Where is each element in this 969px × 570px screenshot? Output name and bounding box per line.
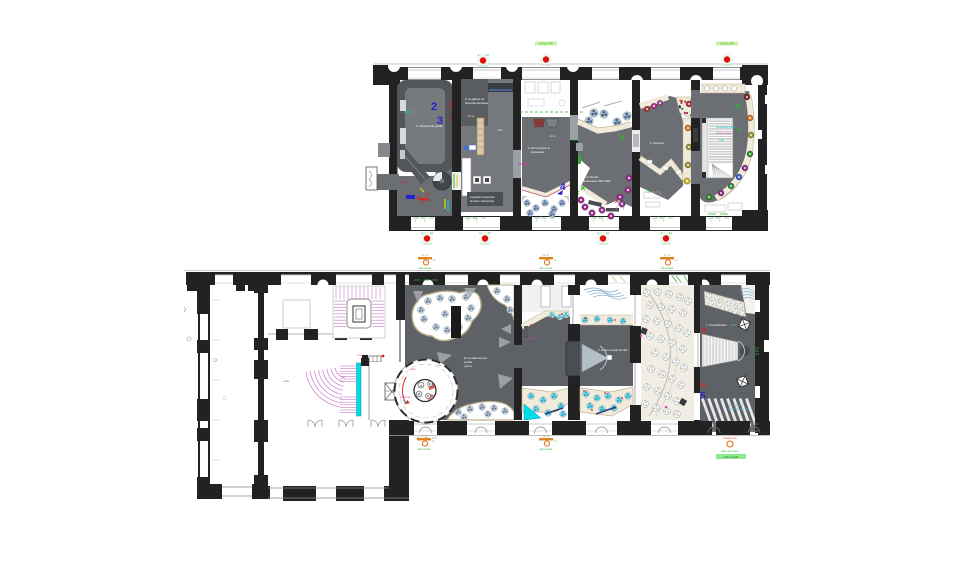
- svg-text:vitrine: vitrine: [549, 135, 556, 138]
- svg-text:5. mineraux: 5. mineraux: [650, 141, 665, 145]
- svg-text:niv 0.00: niv 0.00: [478, 64, 488, 68]
- svg-text:salle: salle: [497, 128, 503, 132]
- svg-text:jardin public: jardin public: [723, 455, 740, 459]
- svg-text:vitrine: vitrine: [467, 114, 474, 118]
- svg-text:2. la serre royale de l'Est: 2. la serre royale de l'Est: [598, 348, 628, 352]
- svg-text:salon: salon: [410, 368, 416, 371]
- svg-text:niv 0.00: niv 0.00: [480, 242, 490, 246]
- svg-text:1b. la salle des pas: 1b. la salle des pas: [464, 356, 488, 360]
- svg-text:plan coupe: plan coupe: [418, 447, 431, 451]
- svg-text:mezzanine haute: mezzanine haute: [716, 125, 736, 129]
- svg-text:1a. vitrail: 1a. vitrail: [400, 396, 410, 399]
- svg-text:sortie: sortie: [422, 423, 429, 426]
- svg-text:plan de coupe: plan de coupe: [721, 449, 739, 453]
- svg-text:niv 0.00: niv 0.00: [598, 242, 608, 246]
- svg-text:coupe AA’: coupe AA’: [539, 42, 554, 46]
- svg-text:salle: salle: [283, 379, 290, 383]
- svg-text:3. Entre erosion et: 3. Entre erosion et: [528, 146, 550, 150]
- svg-text:niveau repere: niveau repere: [716, 131, 732, 135]
- svg-text:coupe AA’: coupe AA’: [720, 42, 735, 46]
- svg-text:vide: vide: [719, 138, 724, 142]
- svg-text:niveau xxx: niveau xxx: [723, 436, 737, 440]
- svg-text:dinosaures: dinosaures: [531, 150, 545, 154]
- svg-text:plan coupe: plan coupe: [419, 266, 432, 270]
- svg-text:exposition temporaire: exposition temporaire: [470, 195, 495, 199]
- svg-text:sortie: sortie: [400, 180, 408, 184]
- svg-text:niv. xx: niv. xx: [543, 435, 550, 438]
- svg-text:niv. xx: niv. xx: [664, 254, 671, 257]
- svg-text:amphitheatre ete: amphitheatre ete: [728, 407, 749, 411]
- svg-text:7. l'amphitheatre: 7. l'amphitheatre: [706, 323, 727, 327]
- svg-text:niv 0.00: niv 0.00: [722, 63, 732, 67]
- svg-text:4. Un Monde: 4. Un Monde: [583, 175, 599, 179]
- svg-text:2: 2: [431, 101, 437, 113]
- svg-text:plan coupe: plan coupe: [540, 266, 553, 270]
- svg-text:niv. xx: niv. xx: [422, 254, 429, 257]
- svg-text:x.xx: x.xx: [357, 353, 363, 357]
- svg-text:niv. xx: niv. xx: [421, 435, 428, 438]
- svg-text:plan coupe: plan coupe: [661, 266, 674, 270]
- svg-text:niv 0.00: niv 0.00: [661, 242, 671, 246]
- svg-text:Nouvelle-Aquitaine: Nouvelle-Aquitaine: [465, 101, 489, 105]
- svg-text:plan coupe: plan coupe: [540, 447, 553, 451]
- svg-text:4: 4: [560, 182, 566, 193]
- svg-text:x.xx: x.xx: [698, 381, 703, 384]
- svg-text:acces: acces: [572, 138, 580, 142]
- svg-text:la riviere salmonicole: la riviere salmonicole: [470, 199, 495, 203]
- svg-text:niv 0.00: niv 0.00: [422, 242, 432, 246]
- svg-text:niv 0.00: niv 0.00: [541, 63, 551, 67]
- svg-text:perdus: perdus: [464, 360, 473, 364]
- svg-text:niv. xx: niv. xx: [543, 254, 550, 257]
- svg-text:3: 3: [437, 115, 443, 127]
- svg-text:anatomique 1850-1900: anatomique 1850-1900: [583, 179, 611, 183]
- svg-text:acces: acces: [730, 324, 737, 327]
- svg-text:galerie: galerie: [464, 364, 473, 368]
